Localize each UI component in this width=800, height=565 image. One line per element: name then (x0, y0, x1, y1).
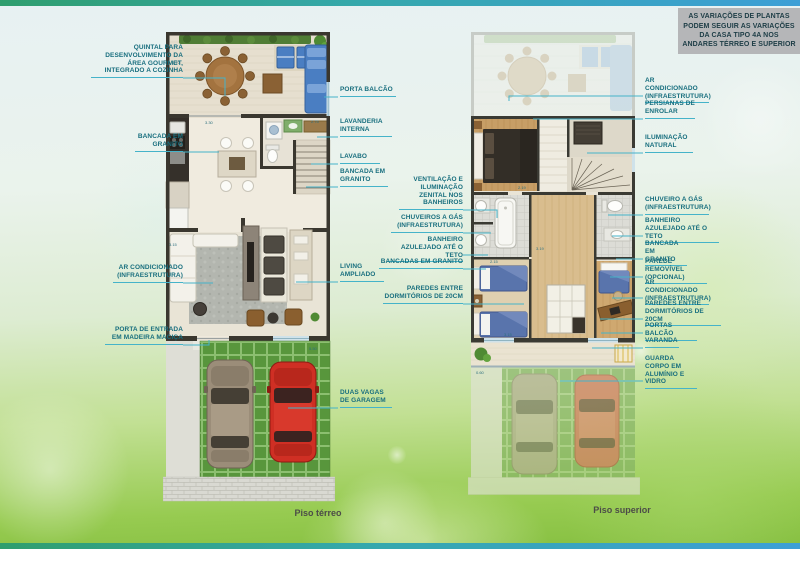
variation-notice-text: AS VARIAÇÕES DE PLANTAS PODEM SEGUIR AS … (682, 12, 796, 50)
label-chuveiros-gas: CHUVEIROS A GÁS (INFRAESTRUTURA) (391, 214, 463, 233)
label-living-ampliado: LIVING AMPLIADO (340, 263, 384, 282)
label-ar-condicionado-terreo: AR CONDICIONADO (INFRAESTRUTURA) (113, 264, 183, 283)
label-persianas-enrolar: PERSIANAS DE ENROLAR (645, 100, 695, 119)
top-accent-stripe (0, 0, 800, 6)
svg-text:5.50: 5.50 (309, 346, 318, 351)
variation-notice-box: AS VARIAÇÕES DE PLANTAS PODEM SEGUIR AS … (678, 8, 800, 54)
closet (537, 119, 567, 191)
ghost-garage (468, 368, 640, 495)
bathroom-left (471, 195, 532, 257)
label-bancada-granito-lavabo: BANCADA EM GRANITO (340, 168, 388, 187)
svg-text:3.15: 3.15 (169, 242, 178, 247)
stairs (293, 140, 330, 194)
svg-text:3.30: 3.30 (205, 120, 214, 125)
label-duas-vagas-garagem: DUAS VAGAS DE GARAGEM (340, 389, 392, 408)
upper-floor-plan: 2.19 2.15 3.19 3.15 0.60 (468, 30, 640, 495)
round-gourmet-table (196, 47, 255, 106)
label-quintal-gourmet: QUINTAL PARA DESENVOLVIMENTO DA ÁREA GOU… (91, 44, 183, 78)
label-varanda: VARANDA (645, 337, 679, 348)
wardrobe (547, 285, 585, 333)
label-porta-balcao: PORTA BALCÃO (340, 86, 396, 97)
upper-floor-rooms (471, 116, 635, 368)
bedroom-twin (471, 257, 532, 340)
car-brown (204, 360, 256, 468)
label-lavabo: LAVABO (340, 153, 380, 164)
bedroom-right (594, 259, 635, 340)
label-porta-entrada: PORTA DE ENTRADA EM MADEIRA MACIÇA (105, 326, 183, 345)
label-paredes-dormitorios-esq: PAREDES ENTRE DORMITÓRIOS DE 20CM (383, 285, 463, 304)
theater-seats (261, 228, 287, 302)
driveway-pavers (163, 477, 335, 501)
upper-hall-stairs (567, 119, 632, 192)
caption-piso-terreo: Piso térreo (258, 508, 378, 518)
label-lavanderia-interna: LAVANDERIA INTERNA (340, 118, 392, 137)
bokeh-circle (0, 390, 130, 550)
label-guarda-corpo: GUARDA CORPO EM ALUMÍNIO E VIDRO (645, 355, 697, 389)
label-bancada-granito-cozinha: BANCADA EM GRANITO (135, 133, 183, 152)
caption-piso-superior: Piso superior (562, 505, 682, 515)
label-iluminacao-natural: ILUMINAÇÃO NATURAL (645, 134, 693, 153)
hedge (179, 35, 311, 44)
bathroom-right (594, 195, 635, 260)
ghost-deck (471, 32, 635, 116)
bokeh-circle (700, 60, 800, 180)
svg-text:3.19: 3.19 (536, 246, 545, 251)
side-table (263, 74, 282, 93)
varanda (471, 343, 635, 368)
svg-text:3.15: 3.15 (504, 332, 513, 337)
label-chuveiro-gas-dir: CHUVEIRO A GÁS (INFRAESTRUTURA) (645, 196, 709, 215)
car-red (267, 362, 319, 462)
label-ventilacao-zenital: VENTILAÇÃO E ILUMINAÇÃO ZENITAL NOS BANH… (399, 176, 463, 210)
footer-white-band (0, 549, 800, 565)
bokeh-circle (388, 446, 406, 464)
house-shell (166, 32, 330, 341)
tv-panel (243, 226, 259, 300)
page-background: AS VARIAÇÕES DE PLANTAS PODEM SEGUIR AS … (0, 0, 800, 565)
ground-floor-plan: 5.70 3.30 2.75 3.15 5.50 (163, 30, 335, 502)
svg-text:2.15: 2.15 (490, 259, 499, 264)
label-bancadas-granito-sup: BANCADAS EM GRANITO (379, 258, 463, 269)
daybed (305, 45, 328, 113)
svg-text:0.60: 0.60 (476, 370, 485, 375)
svg-text:2.19: 2.19 (518, 185, 527, 190)
side-console (290, 230, 312, 300)
front-yard (163, 341, 335, 501)
svg-text:2.75: 2.75 (311, 119, 320, 124)
